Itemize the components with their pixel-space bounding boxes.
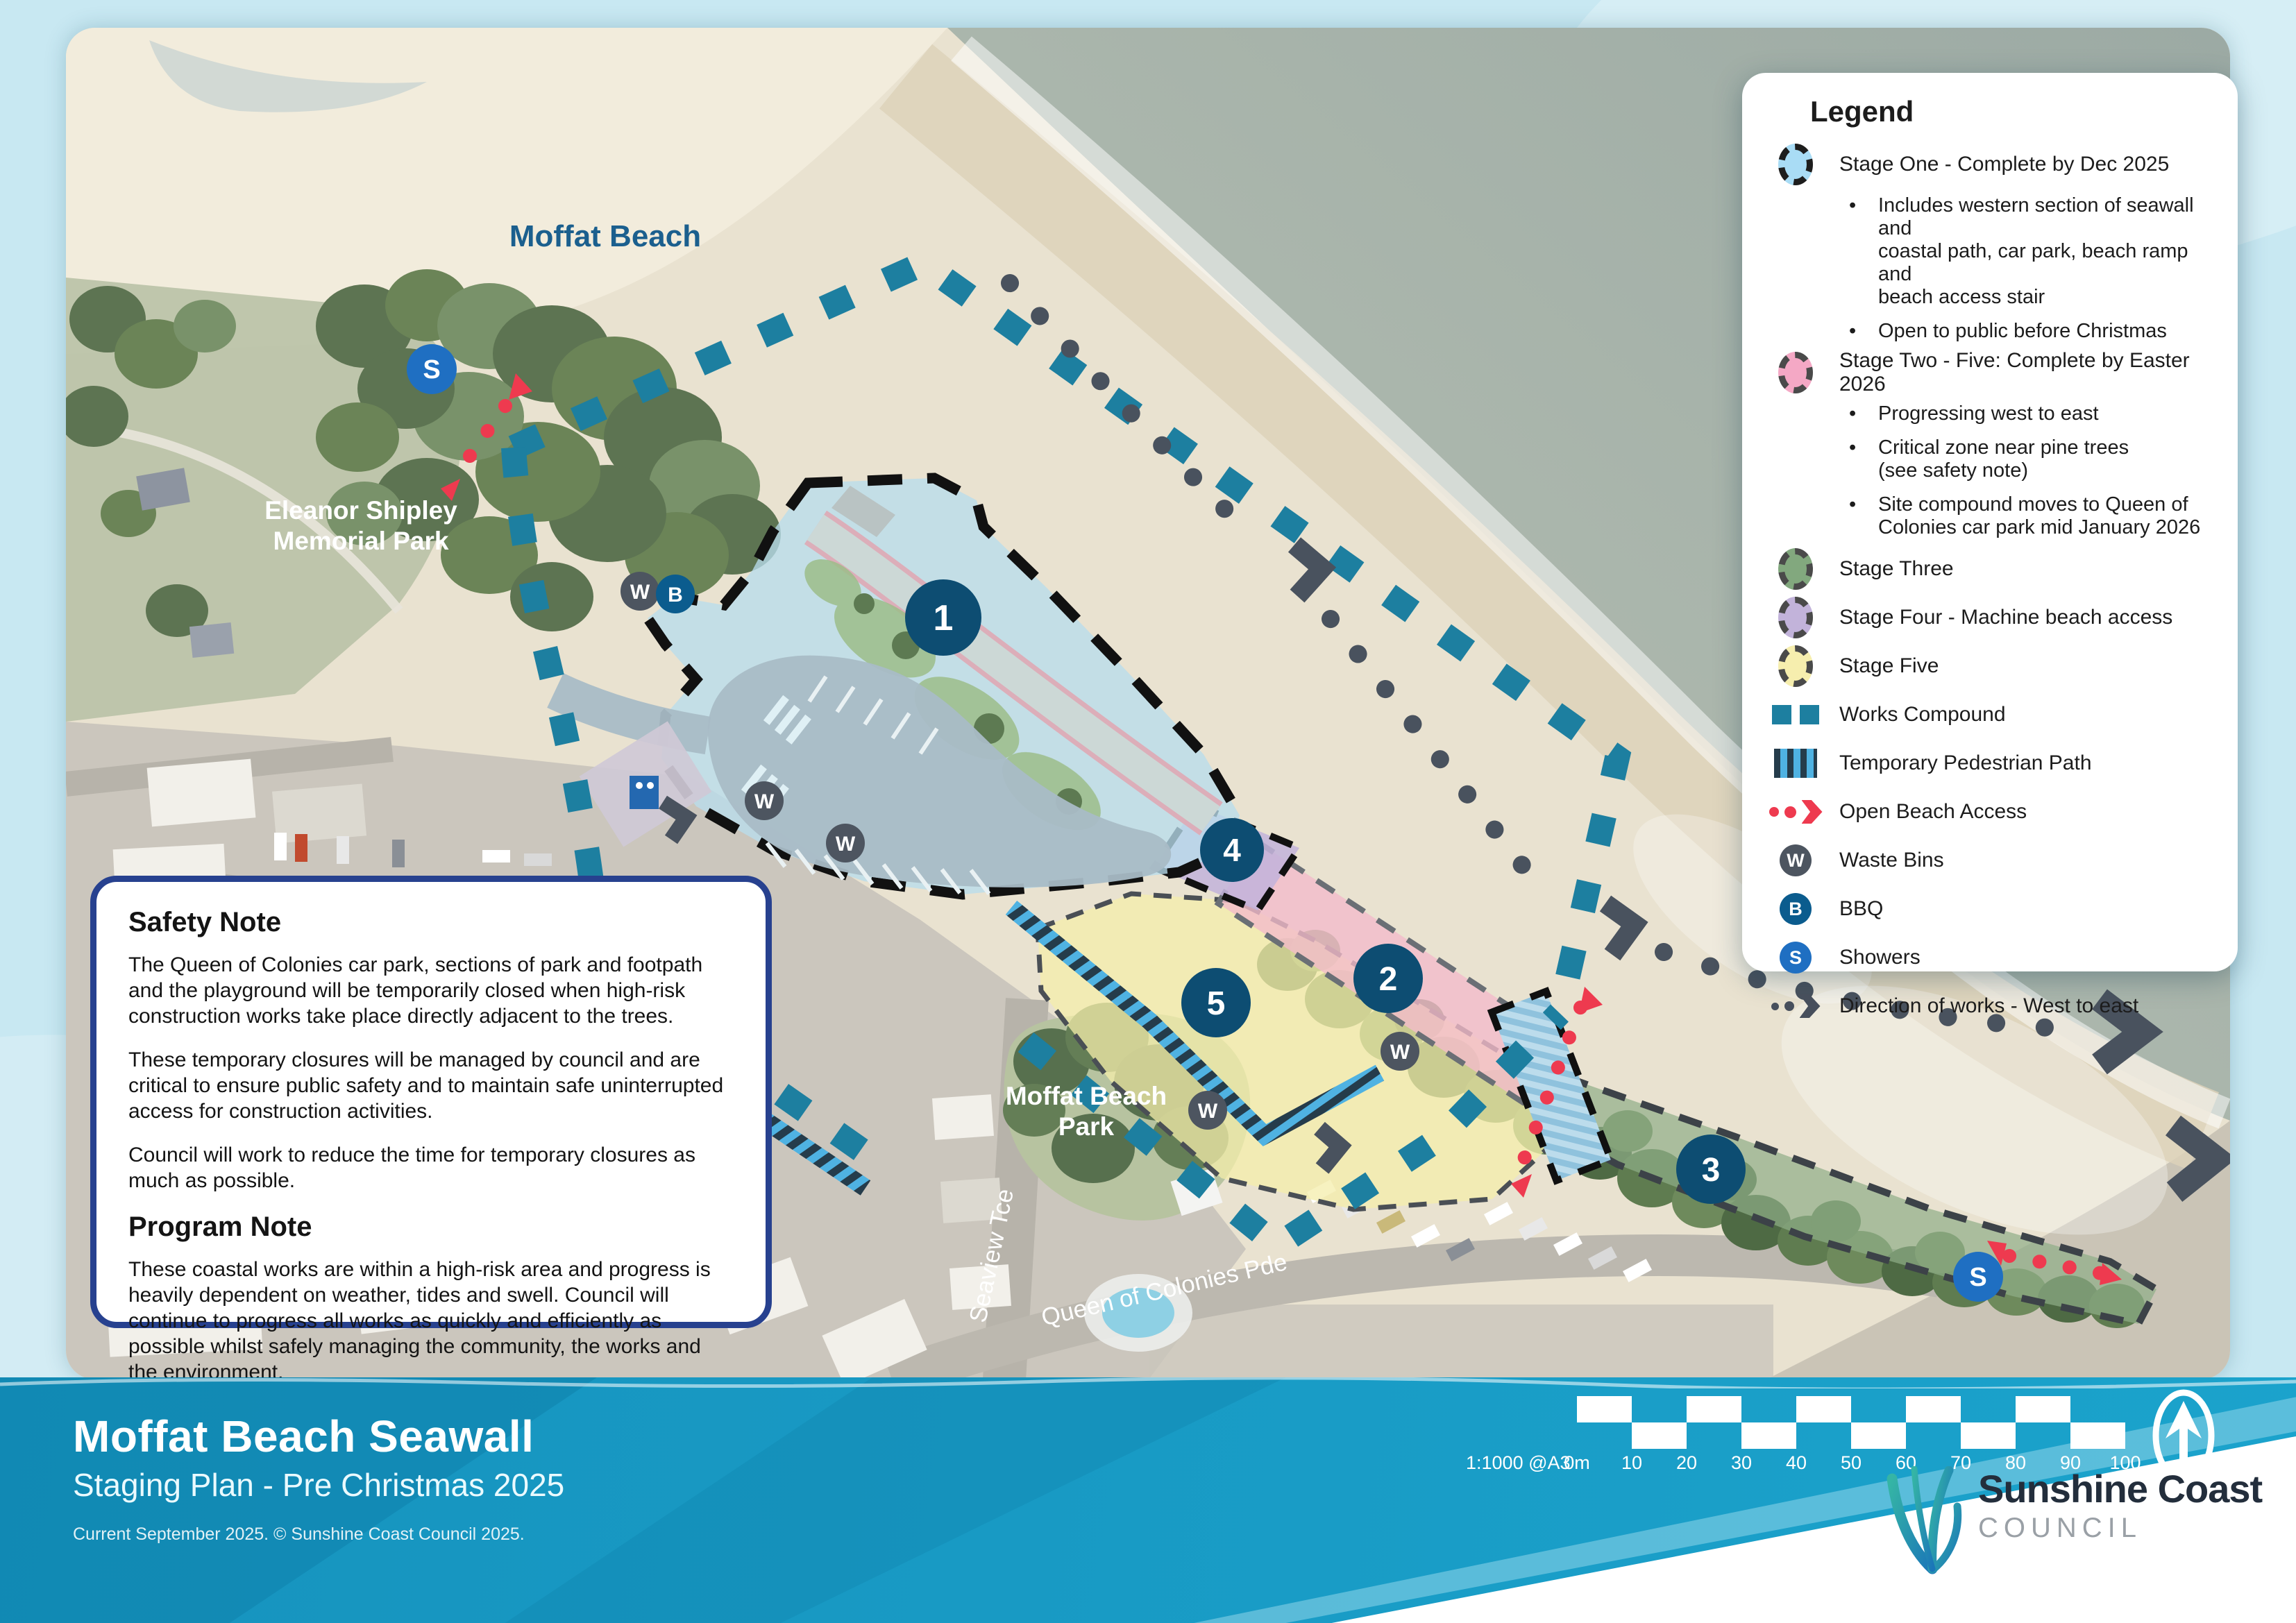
- safety-note-heading: Safety Note: [128, 907, 734, 938]
- legend-item-stage-one: Stage One - Complete by Dec 2025: [1773, 142, 2217, 187]
- council-logo-mark: [1882, 1466, 1966, 1577]
- urban-area: [1149, 1305, 1773, 1379]
- direction-of-works-icon: [1773, 994, 1818, 1018]
- svg-text:1: 1: [934, 598, 954, 638]
- svg-text:W: W: [836, 833, 856, 856]
- legend-item-works-compound: Works Compound: [1773, 692, 2217, 737]
- temporary-pedestrian-path-icon: [1773, 749, 1818, 778]
- stage-one-swatch-icon: [1773, 144, 1818, 185]
- stage-four-swatch-icon: [1773, 597, 1818, 638]
- legend-bullet: Site compound moves to Queen ofColonies …: [1773, 493, 2217, 539]
- label-beach-park: Moffat Beach: [1006, 1082, 1167, 1110]
- legend-title: Legend: [1810, 95, 2217, 128]
- legend-item-stage-three: Stage Three: [1773, 547, 2217, 591]
- waste-bins-icon: W: [1773, 844, 1818, 876]
- legend-bullet: Critical zone near pine trees(see safety…: [1773, 436, 2217, 482]
- svg-text:B: B: [668, 584, 683, 606]
- legend-item-stage-four: Stage Four - Machine beach access: [1773, 595, 2217, 640]
- legend-item-temporary-pedestrian-path: Temporary Pedestrian Path: [1773, 741, 2217, 785]
- svg-text:W: W: [630, 581, 650, 604]
- stage-two-swatch-icon: [1773, 352, 1818, 393]
- program-paragraph: These coastal works are within a high-ri…: [128, 1257, 734, 1385]
- council-logo: Sunshine Coast COUNCIL: [1882, 1466, 2262, 1577]
- legend-bullet: Includes western section of seawall andc…: [1773, 194, 2217, 309]
- svg-text:W: W: [754, 790, 775, 813]
- safety-note-panel: Safety Note The Queen of Colonies car pa…: [90, 876, 772, 1328]
- safety-paragraph: The Queen of Colonies car park, sections…: [128, 952, 734, 1029]
- toilet-sign: [630, 776, 659, 809]
- scale-tick: 40: [1786, 1452, 1807, 1474]
- legend-item-showers: S Showers: [1773, 935, 2217, 980]
- scale-tick: 20: [1676, 1452, 1697, 1474]
- park-shelter: [189, 622, 234, 658]
- legend-item-direction-of-works: Direction of works - West to east: [1773, 984, 2217, 1028]
- svg-text:S: S: [1969, 1263, 1986, 1292]
- toilet-sign-figure: [647, 782, 654, 789]
- bbq-icon: B: [1773, 893, 1818, 925]
- works-compound-icon: [1773, 705, 1818, 724]
- poster-subtitle: Staging Plan - Pre Christmas 2025: [73, 1466, 564, 1504]
- svg-text:5: 5: [1207, 985, 1226, 1022]
- legend-item-bbq: B BBQ: [1773, 887, 2217, 931]
- council-logo-sub: COUNCIL: [1978, 1513, 2262, 1544]
- svg-text:2: 2: [1379, 961, 1398, 998]
- svg-text:4: 4: [1223, 832, 1241, 868]
- scale-ratio-label: 1:1000 @A3: [1466, 1452, 1571, 1474]
- band-wave-line: [0, 1377, 2296, 1388]
- svg-text:3: 3: [1702, 1152, 1721, 1189]
- footer-band: Moffat Beach Seawall Staging Plan - Pre …: [0, 1377, 2296, 1623]
- staging-plan-poster: 1 4 2 5 3 S W B W W W W S: [0, 0, 2296, 1623]
- showers-icon: S: [1773, 942, 1818, 974]
- label-moffat-beach: Moffat Beach: [509, 219, 701, 253]
- stage-five-swatch-icon: [1773, 645, 1818, 687]
- safety-paragraph: Council will work to reduce the time for…: [128, 1142, 734, 1193]
- label-memorial-park: Eleanor Shipley: [264, 496, 457, 525]
- svg-text:W: W: [1198, 1100, 1218, 1123]
- label-beach-park: Park: [1058, 1112, 1115, 1141]
- legend-item-stage-five: Stage Five: [1773, 644, 2217, 688]
- legend-bullet: Progressing west to east: [1773, 402, 2217, 425]
- stage-three-swatch-icon: [1773, 548, 1818, 590]
- scale-tick: 50: [1841, 1452, 1862, 1474]
- open-beach-access-icon: [1773, 800, 1818, 824]
- scale-tick: 10: [1621, 1452, 1642, 1474]
- safety-paragraph: These temporary closures will be managed…: [128, 1047, 734, 1124]
- scale-bar: [1577, 1396, 2125, 1449]
- scale-tick: 0m: [1564, 1452, 1590, 1474]
- svg-text:S: S: [423, 355, 440, 384]
- poster-credit: Current September 2025. © Sunshine Coast…: [73, 1524, 525, 1545]
- label-memorial-park: Memorial Park: [273, 527, 449, 555]
- toilet-sign-figure: [636, 782, 643, 789]
- legend-panel: Legend Stage One - Complete by Dec 2025 …: [1742, 73, 2238, 971]
- svg-text:W: W: [1390, 1041, 1410, 1064]
- council-logo-name: Sunshine Coast: [1978, 1466, 2262, 1511]
- legend-item-open-beach-access: Open Beach Access: [1773, 790, 2217, 834]
- legend-bullet: Open to public before Christmas: [1773, 320, 2217, 343]
- scale-tick: 30: [1731, 1452, 1752, 1474]
- legend-item-waste-bins: W Waste Bins: [1773, 838, 2217, 883]
- poster-title: Moffat Beach Seawall: [73, 1411, 534, 1462]
- legend-item-stage-two-five: Stage Two - Five: Complete by Easter 202…: [1773, 350, 2217, 395]
- program-note-heading: Program Note: [128, 1212, 734, 1243]
